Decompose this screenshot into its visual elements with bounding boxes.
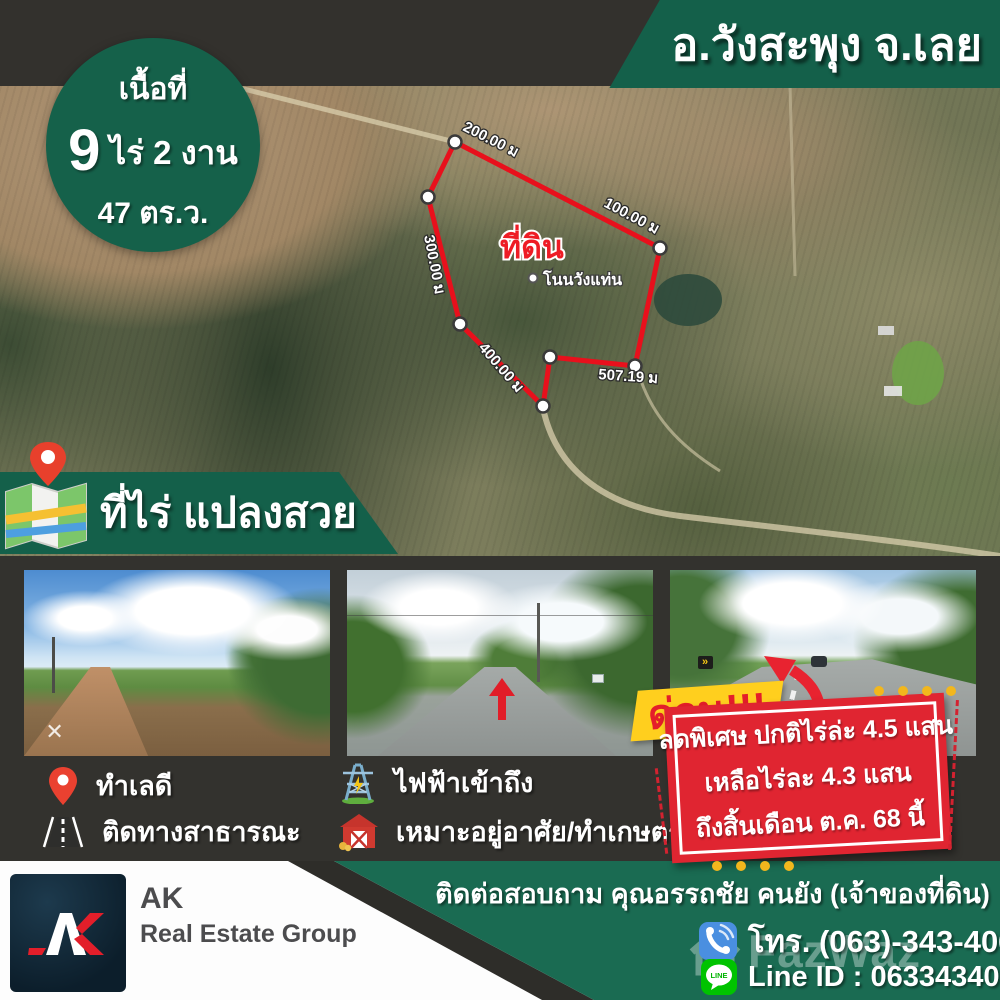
utility-pole xyxy=(537,603,540,681)
agency-logo xyxy=(10,874,126,992)
area-badge: เนื้อที่ 9 ไร่ 2 งาน 47 ตร.ว. xyxy=(46,38,260,252)
area-badge-units: ไร่ 2 งาน xyxy=(110,134,238,171)
brand-subtitle: Real Estate Group xyxy=(140,920,357,949)
phone-icon xyxy=(698,921,738,961)
map-pin-icon xyxy=(2,434,94,554)
place-label: โนนวังแท่น xyxy=(542,269,622,289)
road-icon xyxy=(40,814,86,850)
brand-name: AK xyxy=(140,882,183,916)
area-badge-caption: เนื้อที่ xyxy=(46,66,260,113)
map-road xyxy=(790,86,795,276)
promo-line: เหลือไร่ละ 4.3 แสน xyxy=(703,753,912,804)
barn-icon xyxy=(338,812,380,852)
chevron-sign: » xyxy=(698,656,713,669)
title-banner-text: ที่ไร่ แปลงสวย xyxy=(100,480,357,546)
map-building xyxy=(884,386,902,396)
yellow-dots xyxy=(874,686,956,696)
place-marker-dot xyxy=(529,274,538,283)
feature-road: ติดทางสาธารณะ xyxy=(40,810,301,853)
yellow-dots xyxy=(712,861,794,871)
feature-electricity: ไฟฟ้าเข้าถึง xyxy=(338,760,533,804)
pylon-icon xyxy=(338,760,378,804)
feature-label: ไฟฟ้าเข้าถึง xyxy=(394,761,533,804)
power-line xyxy=(347,615,653,616)
plot-label: ที่ดิน xyxy=(500,224,564,265)
feature-location: ทำเลดี xyxy=(46,764,172,807)
feature-label: ทำเลดี xyxy=(96,764,172,807)
line-row: LINE Line ID : 0633434063 xyxy=(700,958,1000,996)
location-banner-text: อ.วังสะพุง จ.เลย xyxy=(671,8,982,80)
map-building xyxy=(878,326,894,335)
pin-icon xyxy=(46,765,80,807)
road-sign xyxy=(592,674,604,683)
listing-poster: 200.00 ม 100.00 ม 300.00 ม 400.00 ม 507.… xyxy=(0,0,1000,1000)
red-arrow-annotation xyxy=(485,678,519,722)
promo-line: ถึงสิ้นเดือน ต.ค. 68 นี้ xyxy=(695,797,926,849)
feature-label: เหมาะอยู่อาศัย/ทำเกษตร xyxy=(396,810,683,853)
feature-livable: เหมาะอยู่อาศัย/ทำเกษตร xyxy=(338,810,683,853)
photo-land: ✕ xyxy=(24,570,330,756)
area-badge-sqwa: 47 ตร.ว. xyxy=(46,190,260,237)
line-badge-text: LINE xyxy=(710,971,727,980)
area-badge-number: 9 xyxy=(68,118,100,183)
ak-monogram xyxy=(28,907,108,959)
x-mark: ✕ xyxy=(45,719,63,745)
area-badge-size: 9 ไร่ 2 งาน xyxy=(46,117,260,184)
line-id: Line ID : 0633434063 xyxy=(748,961,1000,994)
feature-label: ติดทางสาธารณะ xyxy=(102,810,301,853)
promo-box: ลดพิเศษ ปกติไร่ล่ะ 4.5 แสน เหลือไร่ละ 4.… xyxy=(664,693,952,863)
utility-pole xyxy=(52,637,55,693)
map-pond xyxy=(654,274,722,326)
dimension-label-507: 507.19 ม xyxy=(598,366,659,387)
photo-road-access xyxy=(347,570,653,756)
map-road xyxy=(240,88,455,142)
map-road xyxy=(543,408,1000,556)
contact-line: ติดต่อสอบถาม คุณอรรถชัย คนยัง (เจ้าของที… xyxy=(430,872,995,915)
line-app-icon: LINE xyxy=(700,958,738,996)
